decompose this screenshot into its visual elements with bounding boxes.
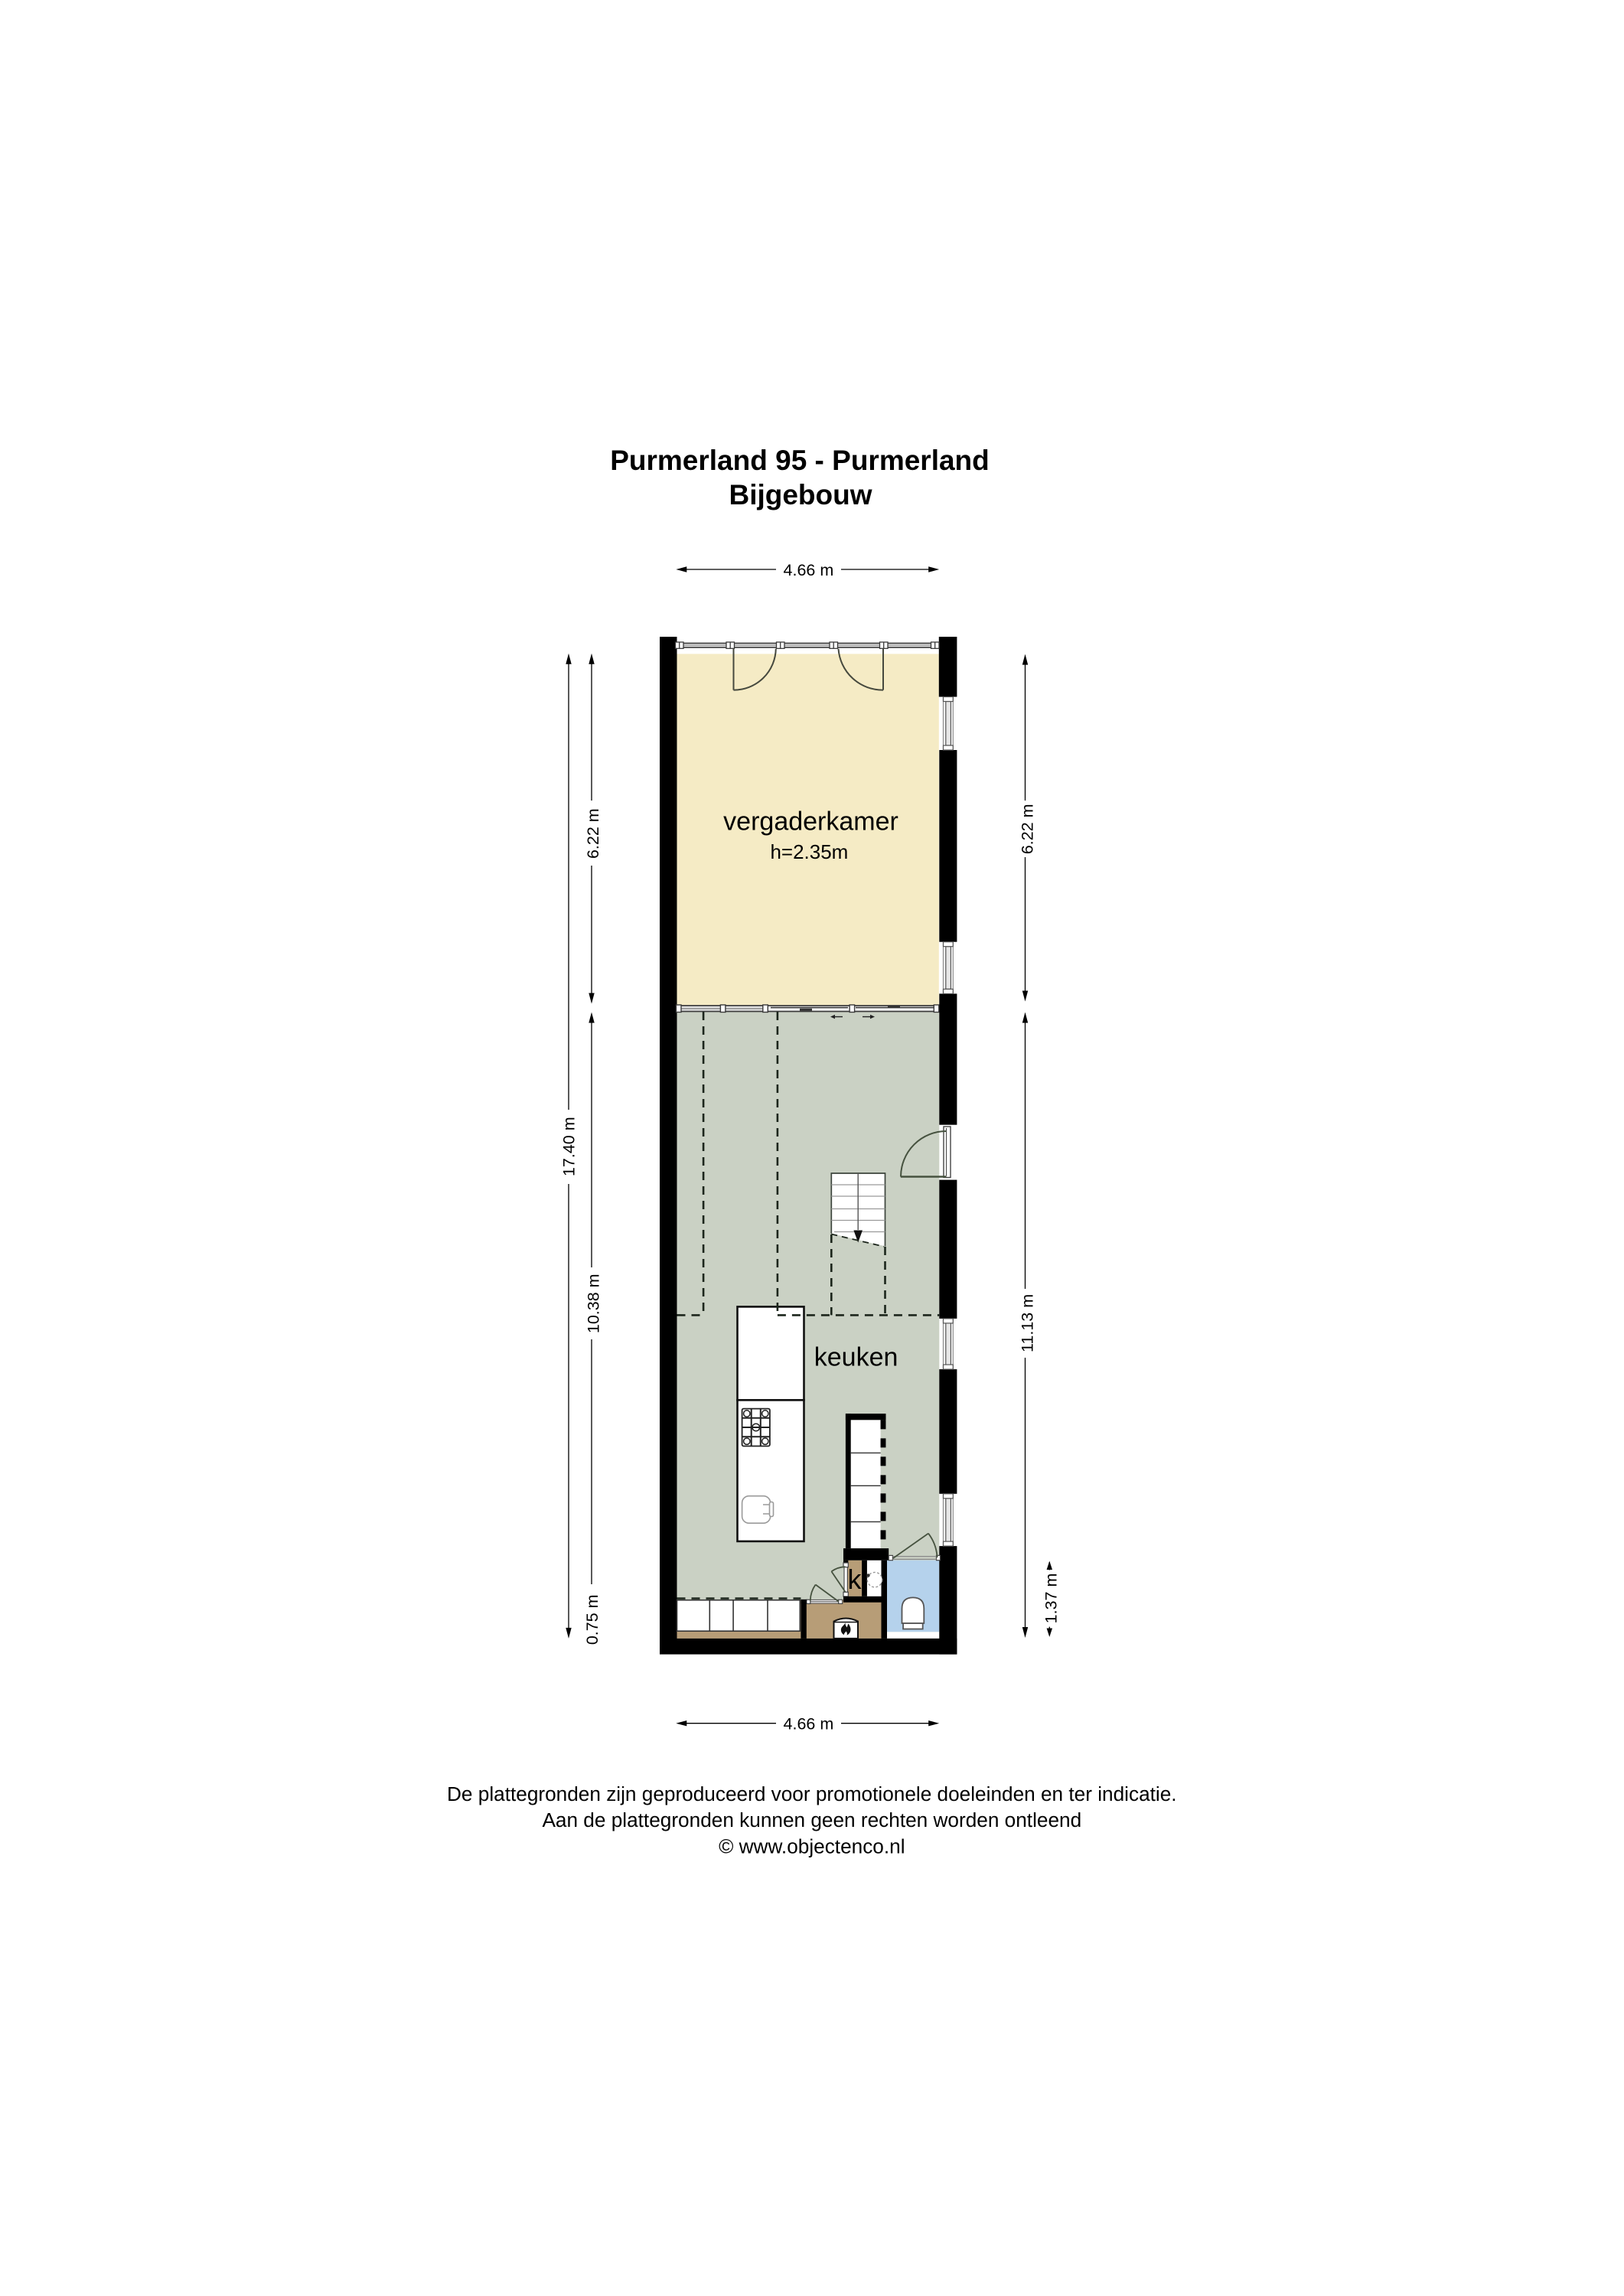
svg-text:k: k bbox=[848, 1564, 863, 1595]
svg-text:10.38 m: 10.38 m bbox=[584, 1274, 602, 1333]
svg-text:11.13 m: 11.13 m bbox=[1018, 1294, 1036, 1352]
svg-text:© www.objectenco.nl: © www.objectenco.nl bbox=[719, 1835, 905, 1858]
svg-text:vergaderkamer: vergaderkamer bbox=[723, 807, 898, 836]
svg-text:Aan de plattegronden kunnen ge: Aan de plattegronden kunnen geen rechten… bbox=[542, 1808, 1081, 1831]
svg-text:Bijgebouw: Bijgebouw bbox=[729, 479, 872, 510]
svg-text:6.22 m: 6.22 m bbox=[1019, 804, 1037, 854]
svg-text:4.66 m: 4.66 m bbox=[784, 561, 834, 579]
svg-text:6.22 m: 6.22 m bbox=[584, 808, 602, 859]
svg-text:De plattegronden zijn geproduc: De plattegronden zijn geproduceerd voor … bbox=[447, 1782, 1177, 1805]
svg-text:h=2.35m: h=2.35m bbox=[770, 840, 848, 863]
svg-text:keuken: keuken bbox=[814, 1343, 898, 1372]
svg-text:17.40 m: 17.40 m bbox=[560, 1117, 579, 1176]
svg-text:Purmerland 95 - Purmerland: Purmerland 95 - Purmerland bbox=[610, 445, 990, 476]
svg-text:1.37 m: 1.37 m bbox=[1042, 1574, 1061, 1624]
svg-text:0.75 m: 0.75 m bbox=[583, 1594, 602, 1645]
svg-text:4.66 m: 4.66 m bbox=[784, 1715, 834, 1733]
